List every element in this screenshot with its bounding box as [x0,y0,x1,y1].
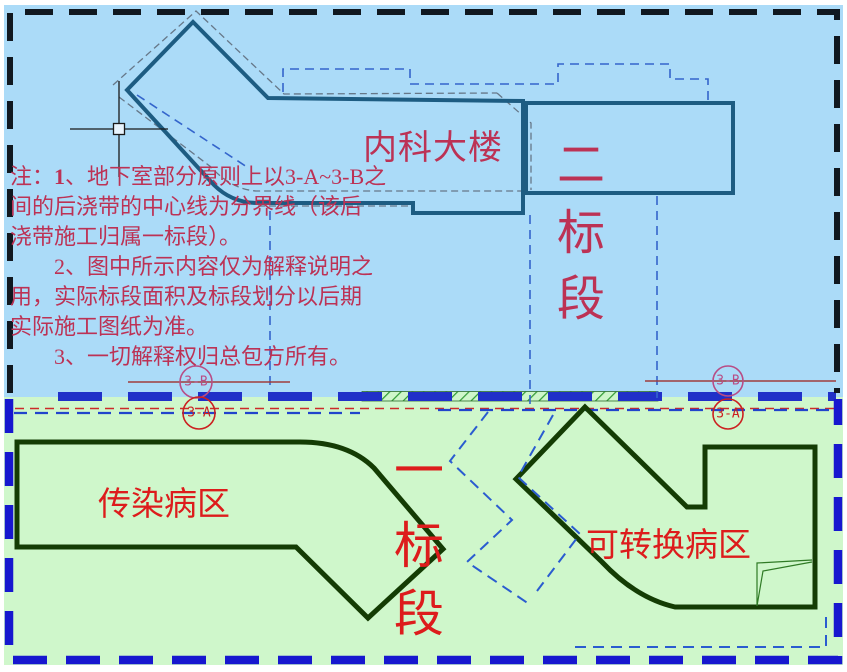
note-line-5: 用，实际标段面积及标段划分以后期 [10,282,390,312]
grid-marker-3a-right-label: 3-A [716,407,740,422]
section1-char-3: 段 [394,589,444,639]
note-line-6: 实际施工图纸为准。 [10,312,390,342]
grid-marker-3b-left-label: 3-B [184,375,208,390]
grid-marker-3a-left-label: 3-A [187,406,211,421]
note-line-7: 3、一切解释权归总包方所有。 [10,342,390,372]
section2-char-3: 段 [557,276,605,324]
note-item1-number: 1 [54,164,65,189]
section2-char-2: 标 [557,210,605,258]
notes-block: 注：1、地下室部分原则上以3-A~3-B之 间的后浇带的中心线为分界线（该后 浇… [10,162,390,372]
top-building-label: 内科大楼 [363,120,503,169]
note-item1-text: 、地下室部分原则上以3-A~3-B之 [65,164,386,189]
bottom-left-building-label: 传染病区 [98,477,230,525]
section1-char-1: 一 [394,446,444,496]
note-line-4: 2、图中所示内容仅为解释说明之 [10,252,390,282]
cad-drawing-canvas[interactable]: 3-B 3-A 3-B 3-A 注：1、地下室部分原则上以3-A~3-B之 间的… [0,0,847,672]
note-line-2: 间的后浇带的中心线为分界线（该后 [10,192,390,222]
note-line-3: 浇带施工归属一标段）。 [10,222,390,252]
section2-char-1: 二 [557,142,605,190]
section1-char-2: 标 [394,521,444,571]
bottom-right-building-label: 可转换病区 [586,518,751,566]
note-prefix: 注： [10,164,54,189]
grid-marker-3b-right-label: 3-B [716,374,740,389]
note-line-1: 注：1、地下室部分原则上以3-A~3-B之 [10,162,390,192]
